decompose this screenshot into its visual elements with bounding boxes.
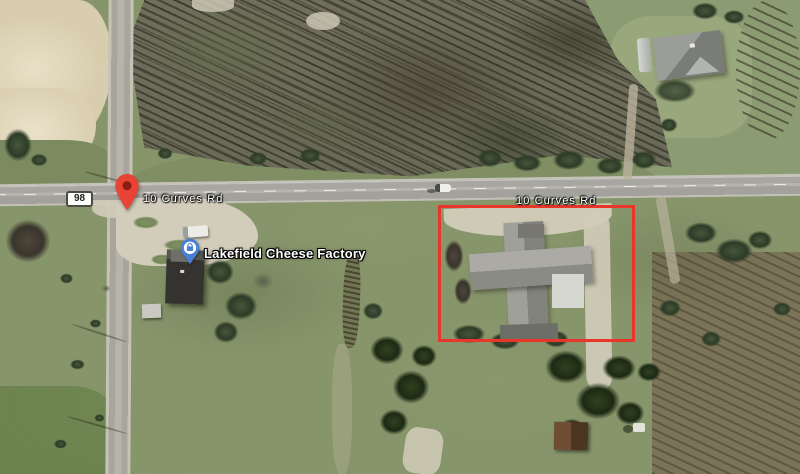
- house-northeast: [653, 30, 726, 81]
- tree-cluster: [210, 318, 242, 346]
- tree-cluster: [474, 146, 506, 170]
- route-shield-98: 98: [66, 191, 93, 207]
- destination-pin-icon[interactable]: [114, 173, 140, 211]
- evergreen-tree: [388, 366, 434, 408]
- tree-cluster: [28, 152, 50, 168]
- white-car: [435, 184, 451, 192]
- evergreen-tree: [408, 342, 440, 370]
- poi-label[interactable]: Lakefield Cheese Factory: [204, 246, 366, 261]
- road-label-west: 10 Curves Rd: [143, 193, 223, 205]
- evergreen-tree: [376, 406, 412, 438]
- dark-vegetation: [0, 214, 56, 268]
- tree-cluster: [592, 155, 628, 177]
- tree-cluster: [688, 0, 722, 22]
- evergreen-tree: [634, 360, 664, 384]
- tree-cluster: [744, 228, 776, 252]
- tree-cluster: [698, 329, 724, 349]
- camper-trailer: [637, 38, 652, 73]
- tree-cluster: [88, 318, 103, 329]
- satellite-map-canvas[interactable]: 98 10 Curves Rd 10 Curves Rd Lakefield C…: [0, 0, 800, 474]
- road-label-east: 10 Curves Rd: [516, 195, 596, 207]
- gravel-area: [306, 12, 340, 30]
- gravel-area: [401, 426, 445, 474]
- house-chimney: [690, 43, 695, 48]
- tree-cluster: [52, 438, 69, 450]
- tree-cluster: [58, 272, 75, 285]
- tree-cluster: [656, 297, 684, 319]
- grass-island: [132, 216, 160, 229]
- small-shed: [142, 304, 161, 319]
- white-trailer: [183, 225, 209, 238]
- highlight-rectangle: [438, 205, 635, 342]
- object-shadow: [623, 425, 633, 433]
- white-object: [633, 423, 645, 432]
- tree-cluster: [770, 300, 794, 318]
- brown-shed: [554, 422, 588, 451]
- poi-pin-icon[interactable]: [180, 238, 200, 265]
- evergreen-tree: [366, 332, 408, 368]
- tree-cluster: [296, 146, 324, 165]
- tree-cluster: [548, 147, 590, 173]
- gravel-area: [192, 0, 234, 12]
- dirt-path: [655, 196, 680, 284]
- destination-pin-dot: [122, 181, 131, 190]
- tree-cluster: [508, 152, 546, 174]
- tree-cluster: [155, 146, 175, 161]
- tree-cluster: [93, 413, 106, 423]
- tree-cluster: [68, 358, 87, 371]
- tree-cluster: [658, 116, 680, 134]
- shopping-bag-icon: [187, 246, 193, 251]
- factory-vent: [180, 270, 184, 273]
- tree-cluster: [628, 148, 660, 172]
- tree-cluster: [246, 150, 270, 167]
- bush: [100, 284, 112, 293]
- route-shield-label: 98: [74, 194, 85, 204]
- tree-cluster: [360, 300, 386, 322]
- house-gable: [683, 55, 719, 76]
- bush: [250, 270, 276, 292]
- tree-cluster: [648, 76, 702, 106]
- bare-tree-row: [736, 0, 800, 140]
- destination-pin-body: [115, 174, 138, 210]
